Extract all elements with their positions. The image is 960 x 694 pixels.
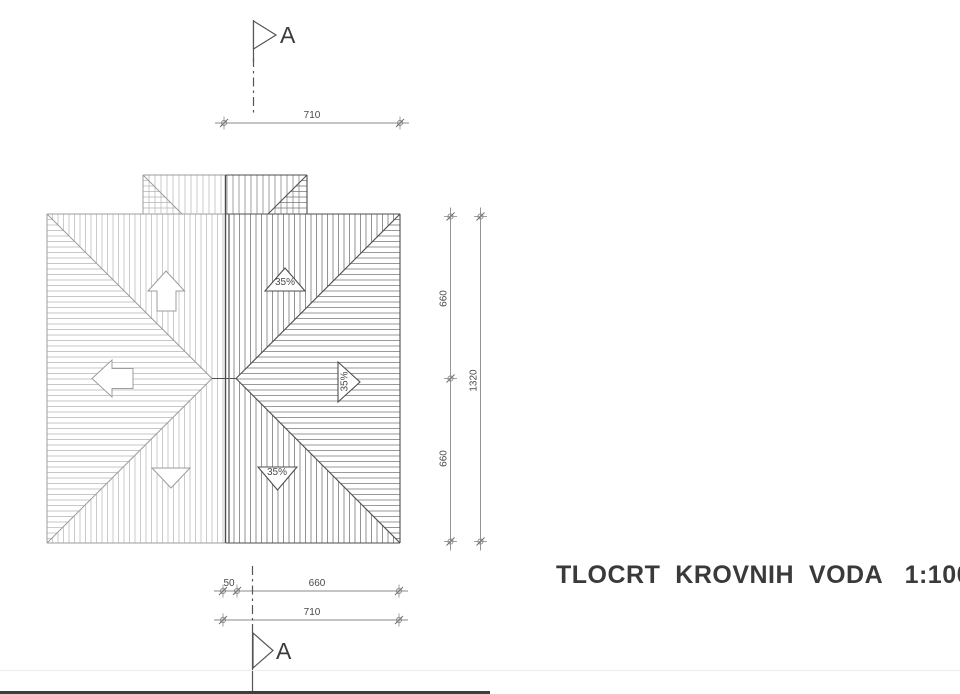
section-marker-a-top: A [280,22,295,49]
dim-label-top-710: 710 [298,110,326,121]
section-marker-a-bottom: A [276,638,291,665]
dim-label-bottom-660: 660 [303,578,331,589]
dim-label-right-660-upper: 660 [439,284,450,314]
drawing-sheet: { "title": { "text": "TLOCRT KROVNIH VOD… [0,0,960,694]
dim-label-bottom-50: 50 [219,578,239,589]
dim-label-right-1320: 1320 [469,364,480,398]
slope-label-bottom-35: 35% [264,467,290,478]
roof-plan-sheet: A A 710 660 660 1320 50 660 710 35% 35% … [0,0,960,694]
dim-label-bottom-710: 710 [298,607,326,618]
drawing-title: TLOCRT KROVNIH VODA 1:100 [556,561,960,590]
slope-label-right-35: 35% [340,369,351,395]
dim-label-right-660-lower: 660 [439,444,450,474]
slope-label-top-35: 35% [272,277,298,288]
